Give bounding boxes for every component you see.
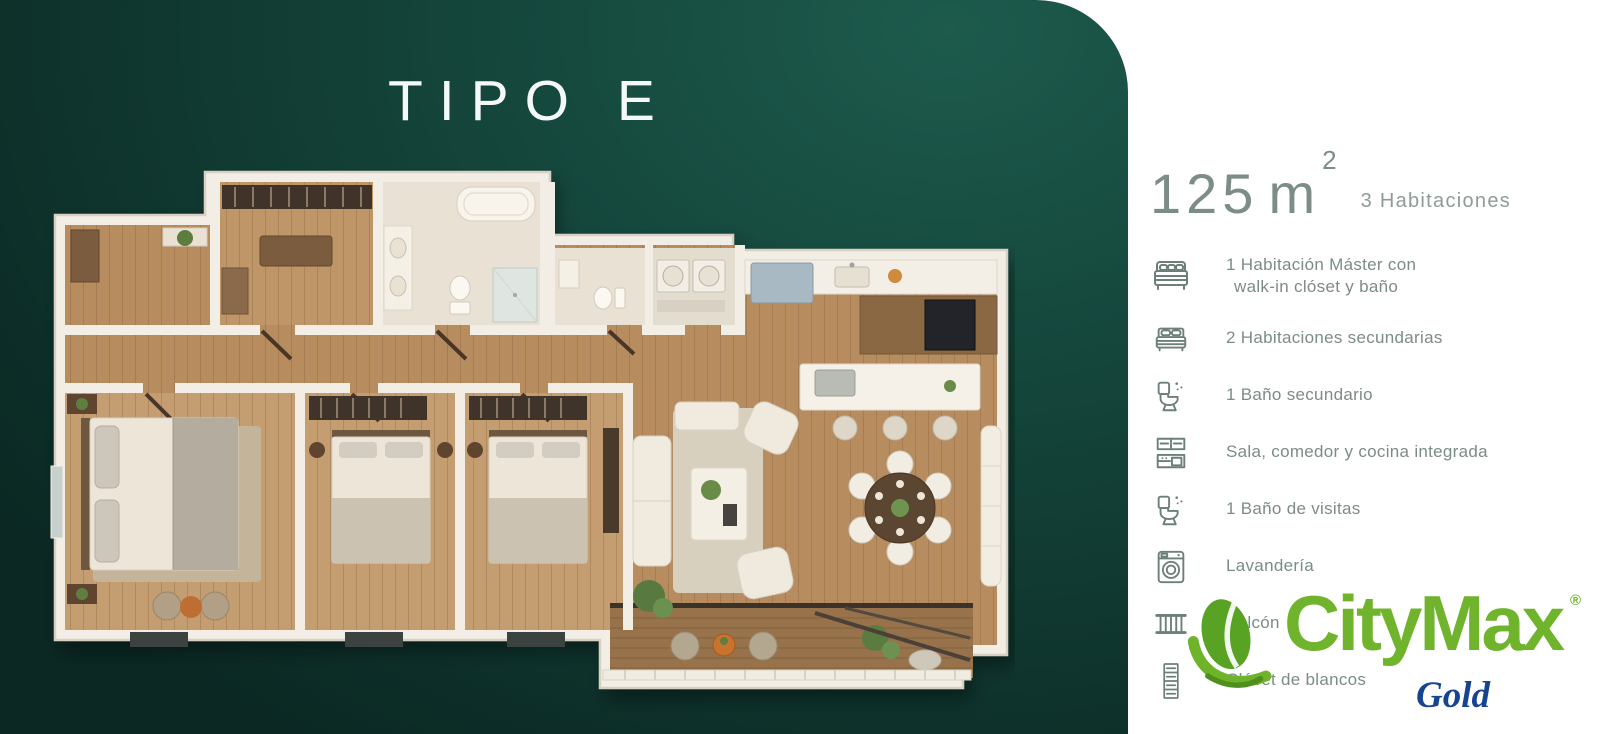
feature-item-living-kitchen: Sala, comedor y cocina integrada — [1148, 424, 1588, 481]
area-superscript: 2 — [1322, 145, 1336, 175]
feature-item-secondary-bath: 1 Baño secundario — [1148, 367, 1588, 424]
brand-sub-name: Gold — [1416, 677, 1490, 714]
plan-type-title: TIPO E — [388, 68, 671, 134]
rooms-count-label: 3 Habitaciones — [1361, 190, 1512, 222]
left-panel: TIPO E — [0, 0, 1128, 734]
feature-text: 2 Habitaciones secundarias — [1226, 327, 1443, 349]
toilet-icon — [1148, 376, 1194, 416]
feature-item-guest-bath: 1 Baño de visitas — [1148, 481, 1588, 538]
master-bed-icon — [1148, 256, 1194, 296]
area-value: 125m2 — [1150, 166, 1337, 222]
brand-name: CityMax — [1284, 584, 1562, 662]
registered-mark: ® — [1570, 592, 1581, 609]
feature-item-master: 1 Habitación Máster conwalk-in clóset y … — [1148, 242, 1588, 310]
feature-text: 1 Habitación Máster conwalk-in clóset y … — [1226, 254, 1416, 298]
feature-text: 1 Baño secundario — [1226, 384, 1373, 406]
kitchen-icon — [1148, 434, 1194, 472]
feature-text: Lavandería — [1226, 555, 1314, 577]
floor-plan-image — [45, 168, 1015, 713]
citymax-leaf-icon — [1186, 582, 1286, 710]
bed-icon — [1148, 320, 1194, 358]
area-summary: 125m2 3 Habitaciones — [1150, 166, 1511, 222]
citymax-logo: CityMax ® Gold — [1186, 578, 1596, 728]
flyer: TIPO E — [0, 0, 1600, 734]
toilet-icon — [1148, 490, 1194, 530]
feature-text: Sala, comedor y cocina integrada — [1226, 441, 1488, 463]
feature-item-secondary-rooms: 2 Habitaciones secundarias — [1148, 310, 1588, 367]
feature-text: 1 Baño de visitas — [1226, 498, 1361, 520]
